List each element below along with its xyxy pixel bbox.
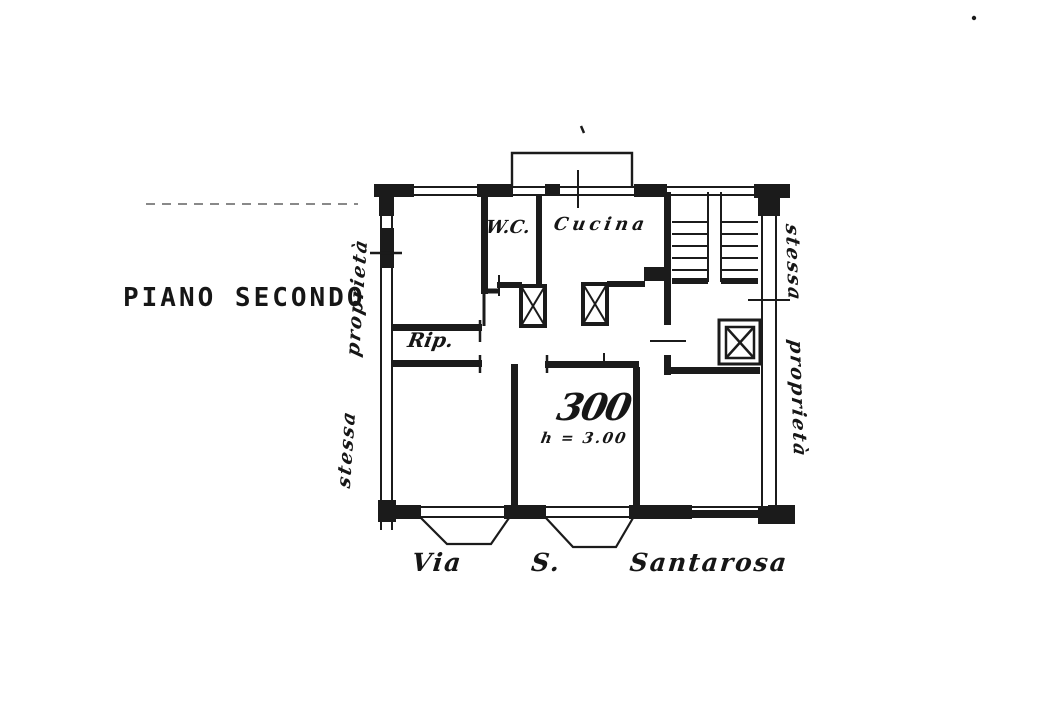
floor-title: PIANO SECONDO — [123, 283, 366, 313]
scanned-floor-plan-page: PIANO SECONDO W.C. Cucina Rip. 300 h = 3… — [0, 0, 1039, 720]
ceiling-height-note: h = 3.00 — [539, 429, 629, 447]
staircase — [672, 192, 758, 284]
elevator-shaft — [719, 320, 760, 364]
room-label-wc: W.C. — [484, 217, 532, 238]
bay-window-left — [421, 518, 509, 544]
street-name: Via S. Santarosa — [410, 548, 789, 577]
floor-plan-drawing — [0, 0, 1039, 720]
bay-window-right — [546, 518, 633, 547]
scan-specks — [581, 16, 976, 133]
balcony-outline — [512, 153, 632, 187]
ventilation-shaft-2 — [583, 284, 607, 324]
room-label-storage: Rip. — [406, 328, 455, 352]
apartment-number: 300 — [553, 385, 634, 429]
bay-windows — [421, 518, 633, 547]
room-label-kitchen: Cucina — [552, 214, 650, 235]
ventilation-shaft-1 — [521, 286, 545, 326]
